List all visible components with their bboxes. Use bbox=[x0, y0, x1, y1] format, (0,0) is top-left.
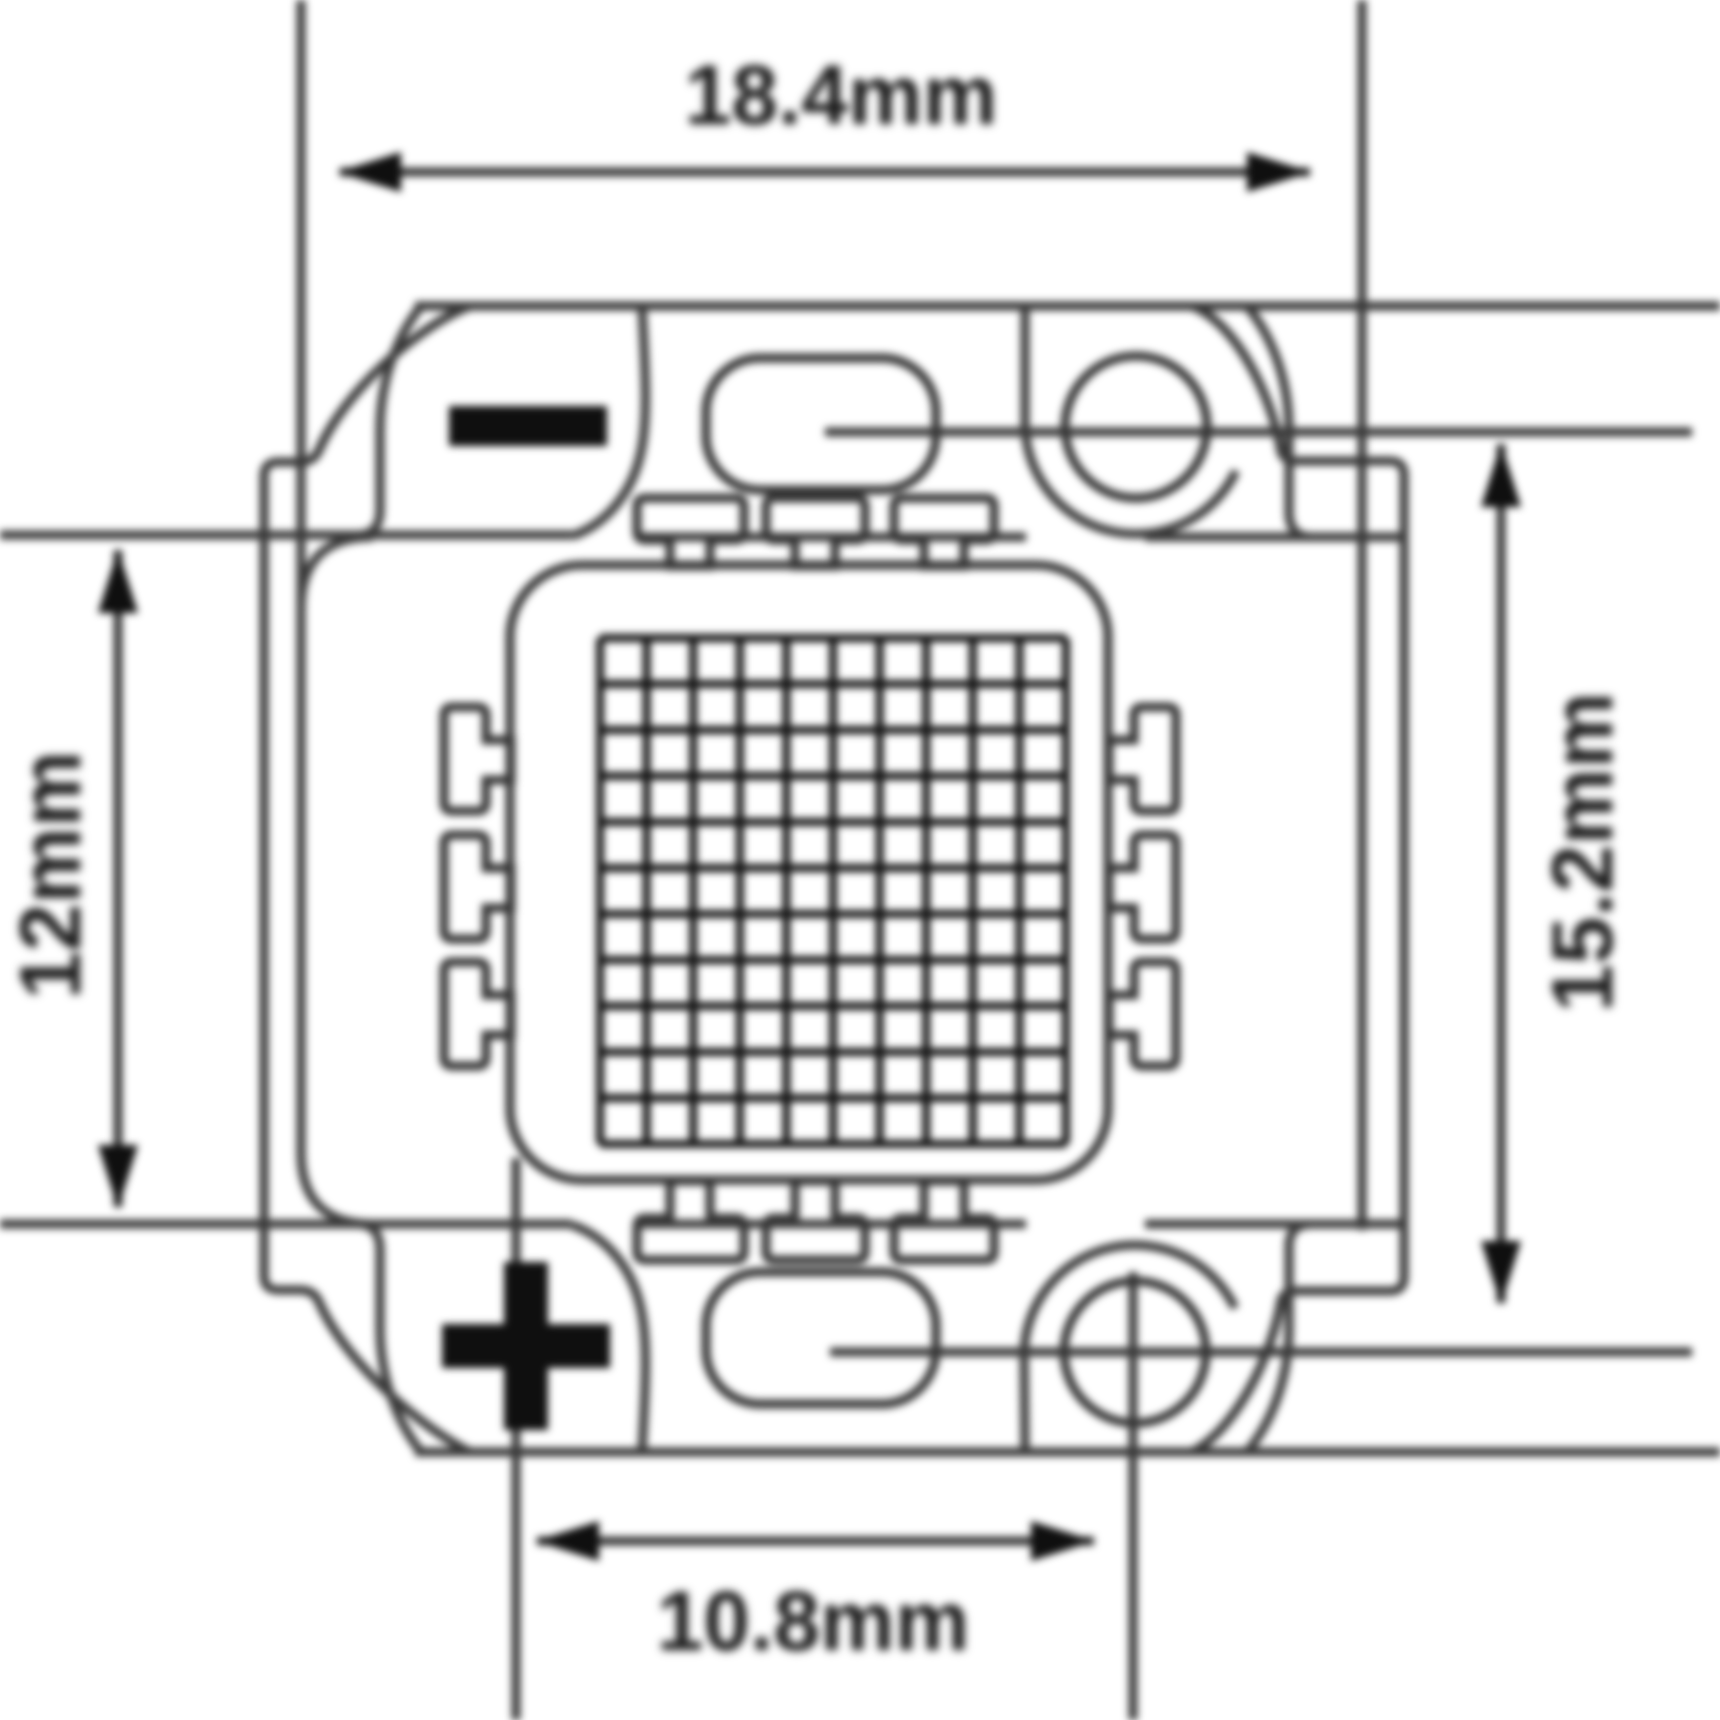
svg-text:15.2mm: 15.2mm bbox=[1535, 692, 1631, 1012]
svg-text:18.4mm: 18.4mm bbox=[685, 48, 998, 142]
svg-text:10.8mm: 10.8mm bbox=[657, 1574, 970, 1668]
svg-text:12mm: 12mm bbox=[3, 751, 99, 1000]
